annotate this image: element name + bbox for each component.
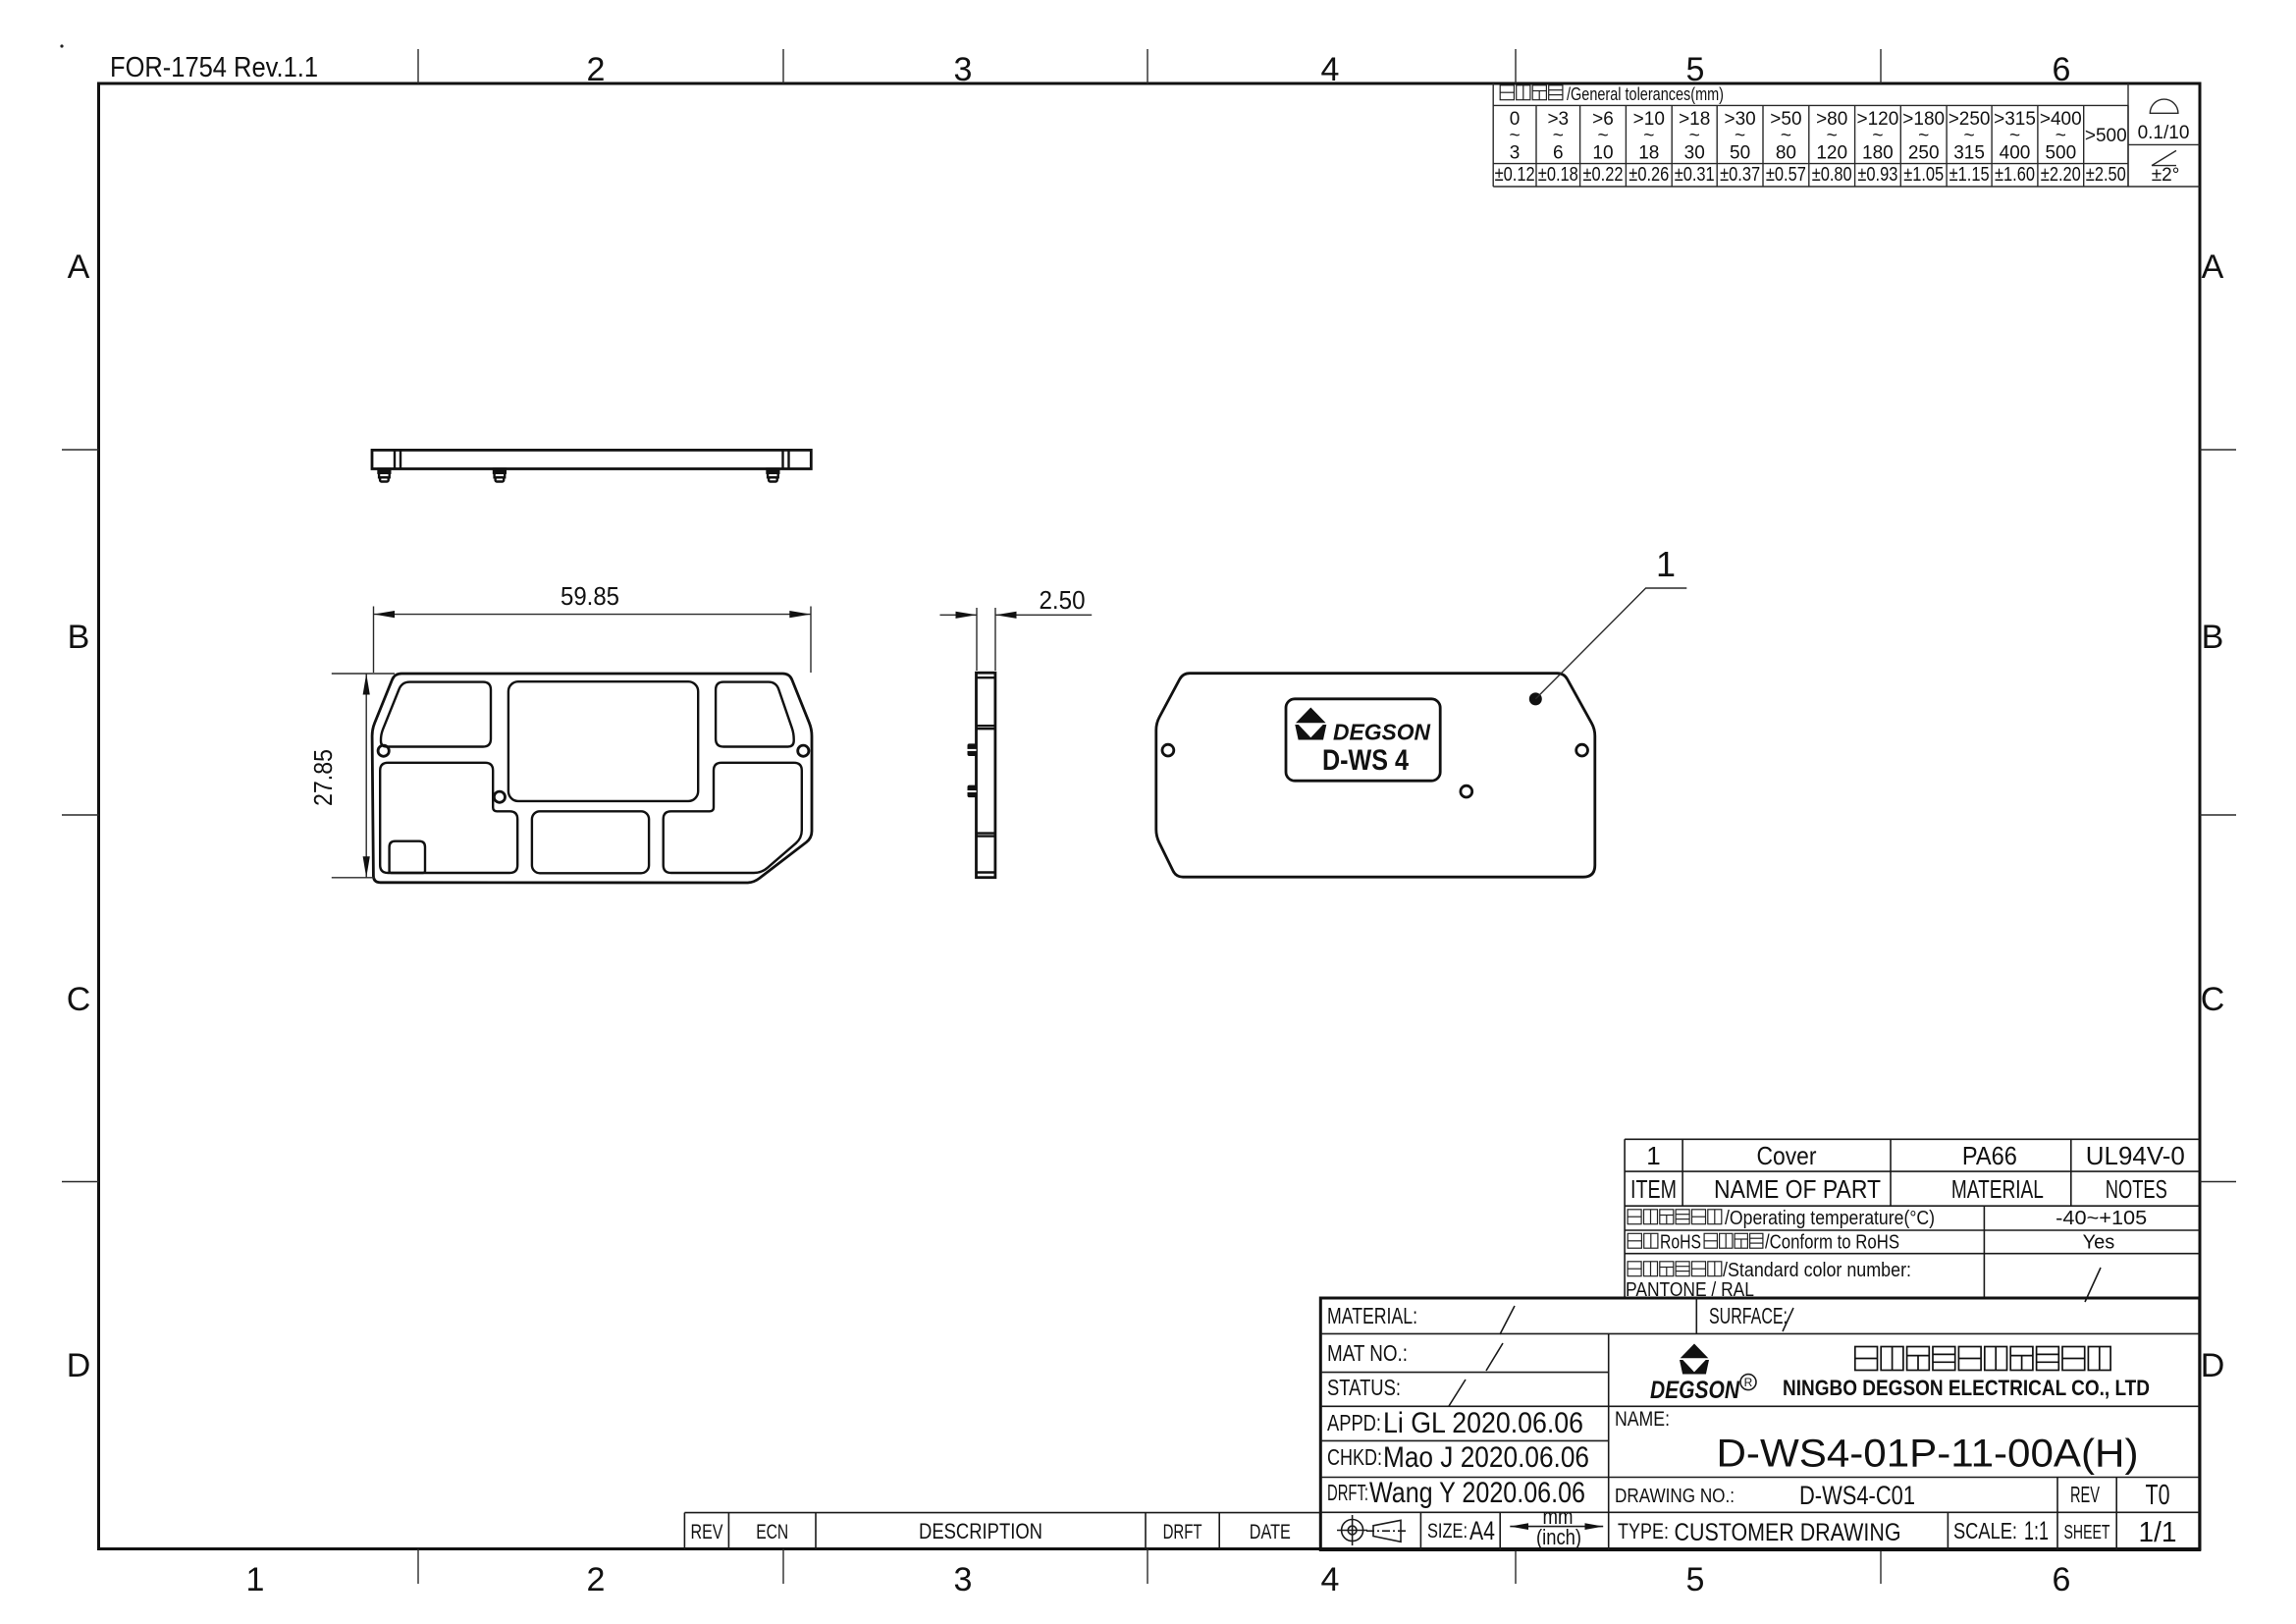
- svg-text:NOTES: NOTES: [2106, 1174, 2167, 1204]
- svg-text:180: 180: [1862, 143, 1894, 164]
- svg-text:500: 500: [2045, 143, 2076, 164]
- svg-text:DRFT: DRFT: [1163, 1521, 1202, 1543]
- svg-text:±0.57: ±0.57: [1766, 164, 1806, 186]
- svg-text:D-WS 4: D-WS 4: [1322, 744, 1409, 777]
- svg-text:1: 1: [246, 1561, 265, 1598]
- svg-text:MATERIAL: MATERIAL: [1951, 1174, 2044, 1204]
- svg-text:±0.18: ±0.18: [1538, 164, 1578, 186]
- svg-text:CUSTOMER DRAWING: CUSTOMER DRAWING: [1675, 1519, 1901, 1546]
- svg-text:2.50: 2.50: [1040, 585, 1086, 615]
- svg-text:>500: >500: [2085, 126, 2127, 146]
- svg-text:STATUS:: STATUS:: [1327, 1375, 1401, 1400]
- svg-text:D: D: [2201, 1347, 2225, 1384]
- svg-text:1:1: 1:1: [2024, 1516, 2049, 1545]
- svg-text:MAT NO.:: MAT NO.:: [1327, 1340, 1408, 1366]
- svg-text:±2.20: ±2.20: [2041, 164, 2081, 186]
- svg-text:(inch): (inch): [1536, 1525, 1581, 1549]
- svg-text:30: 30: [1684, 143, 1705, 164]
- svg-text:±1.60: ±1.60: [1995, 164, 2035, 186]
- svg-text:250: 250: [1908, 143, 1940, 164]
- svg-text:±0.26: ±0.26: [1629, 164, 1669, 186]
- svg-text:/Standard color number:: /Standard color number:: [1723, 1260, 1911, 1281]
- svg-text:1/1: 1/1: [2139, 1517, 2177, 1548]
- svg-text:DRAWING NO.:: DRAWING NO.:: [1615, 1486, 1735, 1507]
- svg-text:D-WS4-C01: D-WS4-C01: [1799, 1481, 1915, 1510]
- svg-text:±1.05: ±1.05: [1903, 164, 1944, 186]
- svg-text:DESCRIPTION: DESCRIPTION: [919, 1519, 1042, 1543]
- svg-text:3: 3: [954, 51, 973, 88]
- svg-text:Cover: Cover: [1757, 1141, 1817, 1170]
- svg-text:NAME:: NAME:: [1615, 1408, 1670, 1431]
- svg-text:ECN: ECN: [756, 1521, 788, 1543]
- svg-text:Mao J 2020.06.06: Mao J 2020.06.06: [1383, 1441, 1589, 1474]
- svg-text:Li GL 2020.06.06: Li GL 2020.06.06: [1383, 1407, 1583, 1439]
- svg-text:SHEET: SHEET: [2064, 1522, 2110, 1543]
- svg-text:UL94V-0: UL94V-0: [2086, 1141, 2185, 1170]
- svg-text:TYPE:: TYPE:: [1618, 1519, 1669, 1543]
- svg-text:±0.93: ±0.93: [1857, 164, 1897, 186]
- svg-text:50: 50: [1730, 143, 1750, 164]
- svg-text:FOR-1754 Rev.1.1: FOR-1754 Rev.1.1: [110, 52, 318, 83]
- svg-text:10: 10: [1592, 143, 1613, 164]
- svg-text:±0.12: ±0.12: [1495, 164, 1535, 186]
- svg-text:C: C: [67, 981, 91, 1018]
- svg-text:120: 120: [1816, 143, 1847, 164]
- svg-text:4: 4: [1321, 1561, 1340, 1598]
- svg-text:3: 3: [1510, 143, 1521, 164]
- svg-text:NAME OF PART: NAME OF PART: [1714, 1174, 1881, 1204]
- svg-text:-40~+105: -40~+105: [2056, 1208, 2147, 1229]
- svg-text:APPD:: APPD:: [1327, 1410, 1381, 1435]
- svg-text:3: 3: [954, 1561, 973, 1598]
- svg-text:Yes: Yes: [2083, 1232, 2115, 1254]
- svg-text:SIZE:: SIZE:: [1427, 1520, 1468, 1543]
- svg-text:REV: REV: [691, 1521, 723, 1543]
- svg-text:DATE: DATE: [1250, 1521, 1291, 1543]
- svg-text:T0: T0: [2146, 1480, 2170, 1511]
- svg-text:A: A: [2202, 248, 2224, 286]
- svg-text:5: 5: [1686, 51, 1705, 88]
- svg-text:±0.37: ±0.37: [1720, 164, 1760, 186]
- svg-text:27.85: 27.85: [308, 749, 338, 806]
- svg-text:ITEM: ITEM: [1630, 1174, 1677, 1204]
- svg-text:/Operating temperature(°C): /Operating temperature(°C): [1725, 1208, 1935, 1229]
- svg-text:0.1/10: 0.1/10: [2138, 123, 2190, 143]
- svg-text:18: 18: [1638, 143, 1659, 164]
- svg-text:REV: REV: [2070, 1482, 2100, 1507]
- svg-text:D-WS4-01P-11-00A(H): D-WS4-01P-11-00A(H): [1717, 1433, 2139, 1476]
- svg-text:CHKD:: CHKD:: [1327, 1444, 1382, 1470]
- svg-text:DRFT:: DRFT:: [1327, 1480, 1368, 1505]
- svg-text:1: 1: [1646, 1141, 1660, 1170]
- svg-text:A: A: [68, 248, 90, 286]
- svg-text:B: B: [68, 619, 90, 656]
- svg-text:C: C: [2201, 981, 2225, 1018]
- svg-text:±2.50: ±2.50: [2086, 164, 2126, 186]
- svg-text:±0.80: ±0.80: [1812, 164, 1852, 186]
- svg-text:SURFACE:: SURFACE:: [1709, 1303, 1788, 1328]
- svg-text:5: 5: [1686, 1561, 1705, 1598]
- svg-text:NINGBO DEGSON ELECTRICAL CO.,: NINGBO DEGSON ELECTRICAL CO., LTD: [1783, 1376, 2150, 1400]
- svg-text:MATERIAL:: MATERIAL:: [1327, 1303, 1417, 1328]
- svg-text:4: 4: [1321, 51, 1340, 88]
- svg-text:±0.22: ±0.22: [1583, 164, 1624, 186]
- svg-text:1: 1: [1656, 544, 1676, 584]
- svg-text:/Conform to RoHS: /Conform to RoHS: [1765, 1232, 1899, 1254]
- svg-text:80: 80: [1776, 143, 1796, 164]
- svg-text:PA66: PA66: [1962, 1141, 2017, 1170]
- svg-text:59.85: 59.85: [561, 581, 619, 611]
- svg-text:B: B: [2202, 619, 2224, 656]
- svg-text:±1.15: ±1.15: [1949, 164, 1990, 186]
- svg-text:R: R: [1744, 1376, 1753, 1389]
- svg-text:/General tolerances(mm): /General tolerances(mm): [1567, 84, 1724, 104]
- svg-text:±2°: ±2°: [2152, 165, 2180, 186]
- svg-text:D: D: [67, 1347, 91, 1384]
- svg-text:A4: A4: [1469, 1516, 1495, 1545]
- svg-text:RoHS: RoHS: [1660, 1232, 1701, 1254]
- svg-text:6: 6: [2053, 1561, 2071, 1598]
- svg-text:DEGSON: DEGSON: [1650, 1377, 1740, 1404]
- svg-text:2: 2: [587, 51, 606, 88]
- svg-text:400: 400: [2000, 143, 2031, 164]
- svg-text:2: 2: [587, 1561, 606, 1598]
- svg-text:DEGSON: DEGSON: [1333, 720, 1430, 745]
- svg-text:SCALE:: SCALE:: [1953, 1518, 2017, 1543]
- svg-text:315: 315: [1953, 143, 1985, 164]
- svg-text:6: 6: [1553, 143, 1564, 164]
- svg-text:±0.31: ±0.31: [1675, 164, 1715, 186]
- svg-text:6: 6: [2053, 51, 2071, 88]
